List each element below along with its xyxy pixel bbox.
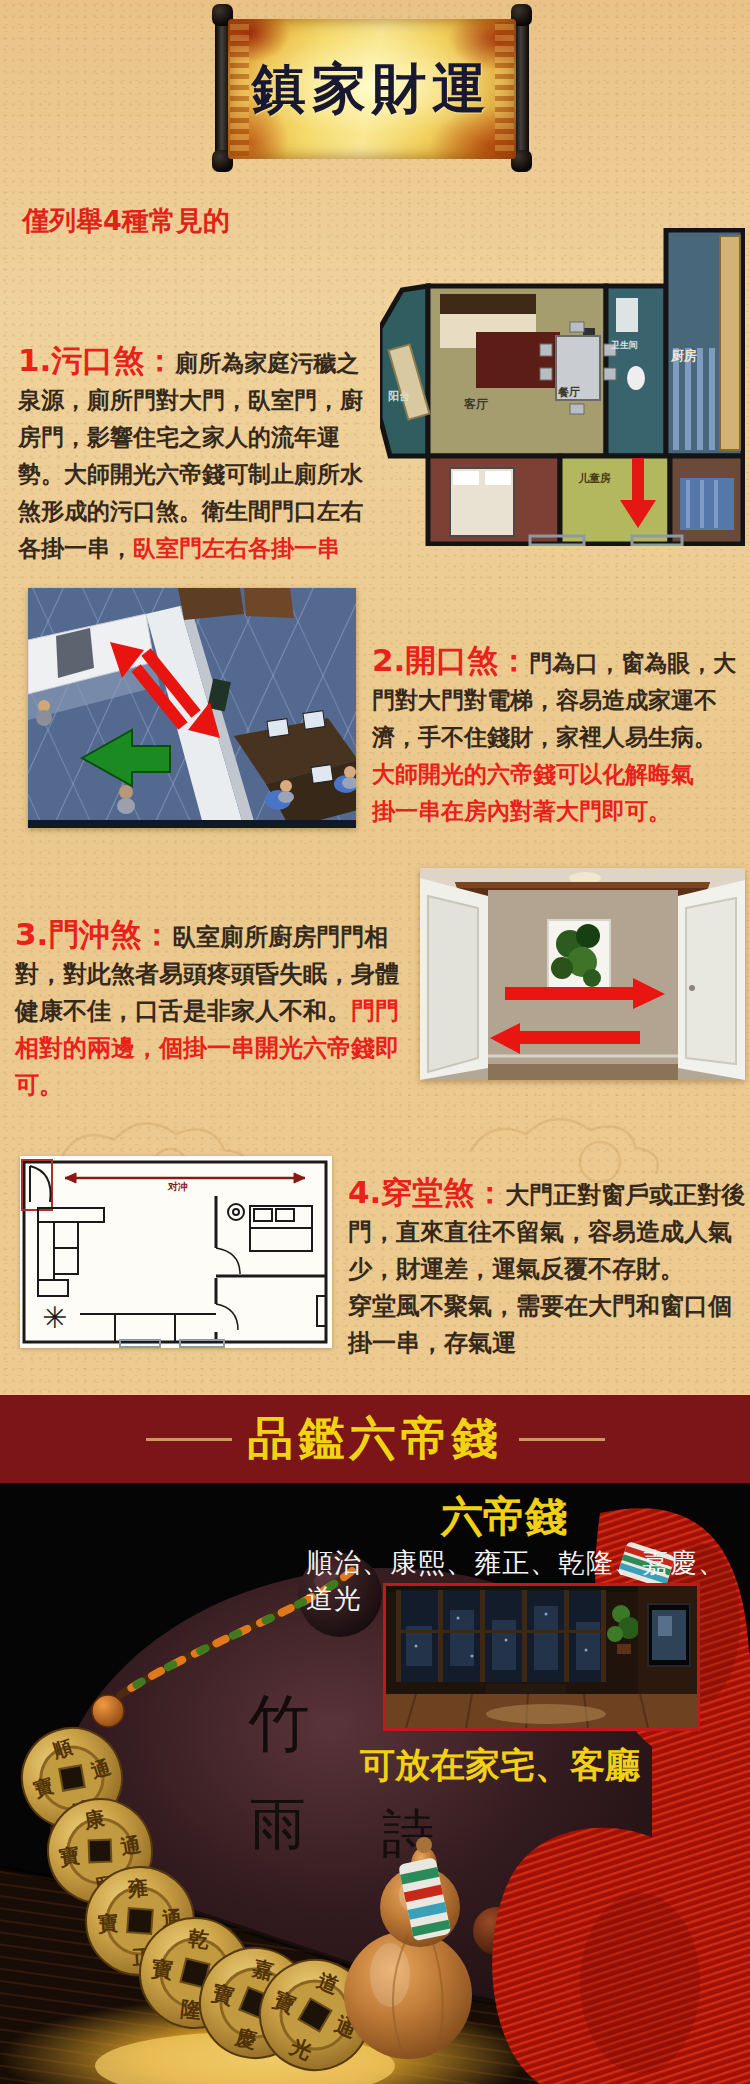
section-2-highlight-1: 大師開光的六帝錢可以化解晦氣 bbox=[372, 756, 745, 793]
section-4-heading: 4.穿堂煞： bbox=[348, 1174, 505, 1210]
section-1-highlight: 臥室門左右各掛一串 bbox=[133, 535, 340, 561]
scroll-roller-right bbox=[514, 12, 529, 164]
rug bbox=[486, 1704, 606, 1724]
sketch-floor-plan-image: 对冲 ✳ bbox=[20, 1156, 332, 1348]
office-3d-image bbox=[28, 588, 356, 828]
section-4-text: 4.穿堂煞：大門正對窗戶或正對後門，直來直往不留氣，容易造成人氣少，財運差，運氣… bbox=[348, 1174, 746, 1362]
bottom-banner-title: 品鑑六帝錢 bbox=[248, 1408, 503, 1470]
section-2-heading: 2.開口煞： bbox=[372, 642, 529, 678]
left-door bbox=[428, 896, 478, 1072]
placement-text: 可放在家宅、客廳 bbox=[360, 1742, 640, 1789]
svg-text:雍: 雍 bbox=[126, 1875, 149, 1900]
cord-bead bbox=[92, 1695, 124, 1727]
section-2-text: 2.開口煞：門為口，窗為眼，大門對大門對電梯，容易造成家運不濟，手不住錢財，家裡… bbox=[372, 642, 745, 830]
plant-sketch: ✳ bbox=[42, 1300, 67, 1335]
banner-line-right bbox=[519, 1438, 605, 1441]
balcony-label: 阳台 bbox=[388, 390, 410, 403]
banner-line-left bbox=[146, 1438, 232, 1441]
svg-text:康: 康 bbox=[82, 1806, 107, 1833]
toilet bbox=[627, 366, 645, 390]
clash-label: 对冲 bbox=[167, 1181, 188, 1192]
dining-label: 餐厅 bbox=[557, 386, 580, 399]
kitchen-label: 厨房 bbox=[670, 348, 697, 363]
banner-title: 鎮家財運 bbox=[252, 53, 492, 126]
svg-text:雨: 雨 bbox=[250, 1791, 306, 1856]
scroll-banner: 鎮家財運 bbox=[213, 6, 531, 172]
section-2-highlight-2: 掛一串在房內對著大門即可。 bbox=[372, 793, 745, 830]
cabinet bbox=[244, 588, 294, 618]
section-4-body-2: 穿堂風不聚氣，需要在大門和窗口個掛一串，存氣運 bbox=[348, 1288, 746, 1362]
section-1-heading: 1.污口煞： bbox=[18, 342, 175, 378]
svg-text:寶: 寶 bbox=[57, 1843, 82, 1870]
product-section: 竹 雨 詩 bbox=[0, 1483, 750, 2084]
parchment-background: 鎮家財運 僅列舉4種常見的 1.污口煞：廁所為家庭污穢之泉源，廁所門對大門，臥室… bbox=[0, 0, 750, 1395]
kids-room-label: 儿童房 bbox=[577, 472, 611, 485]
svg-text:竹: 竹 bbox=[248, 1687, 310, 1760]
bathroom-label: 卫生间 bbox=[610, 340, 638, 350]
plant-art bbox=[548, 920, 610, 994]
section-1-text: 1.污口煞：廁所為家庭污穢之泉源，廁所門對大門，臥室門，廚房門，影響住宅之家人的… bbox=[18, 342, 375, 567]
svg-text:寶: 寶 bbox=[96, 1911, 119, 1936]
svg-text:乾: 乾 bbox=[187, 1925, 210, 1952]
shower bbox=[616, 298, 638, 332]
promo-page: 鎮家財運 僅列舉4種常見的 1.污口煞：廁所為家庭污穢之泉源，廁所門對大門，臥室… bbox=[0, 0, 750, 2084]
section-banner: 品鑑六帝錢 bbox=[0, 1395, 750, 1483]
section-3-heading: 3.門沖煞： bbox=[15, 916, 172, 952]
section-3-text: 3.門沖煞：臥室廁所廚房門門相對，對此煞者易頭疼頭昏失眠，身體健康不佳，口舌是非… bbox=[15, 916, 417, 1104]
intro-text: 僅列舉4種常見的 bbox=[22, 203, 230, 239]
product-name: 六帝錢 bbox=[441, 1489, 567, 1545]
living-label: 客厅 bbox=[463, 397, 488, 411]
svg-text:通: 通 bbox=[118, 1832, 143, 1859]
floor-plan-image: 阳台 客厅 餐厅 厨房 卫生间 儿童房 bbox=[380, 228, 745, 546]
svg-text:寶: 寶 bbox=[149, 1955, 173, 1982]
kitchen-cabinet bbox=[720, 236, 740, 450]
hallway-photo bbox=[420, 868, 745, 1080]
emperor-names: 順治、康熙、雍正、乾隆、嘉慶、道光 bbox=[306, 1545, 750, 1617]
section-1-body: 廁所為家庭污穢之泉源，廁所門對大門，臥室門，廚房門，影響住宅之家人的流年運勢。大… bbox=[18, 350, 363, 561]
door-handle bbox=[689, 985, 695, 991]
sofa-back bbox=[440, 294, 536, 314]
right-door bbox=[686, 898, 736, 1064]
scroll-body: 鎮家財運 bbox=[228, 19, 516, 159]
